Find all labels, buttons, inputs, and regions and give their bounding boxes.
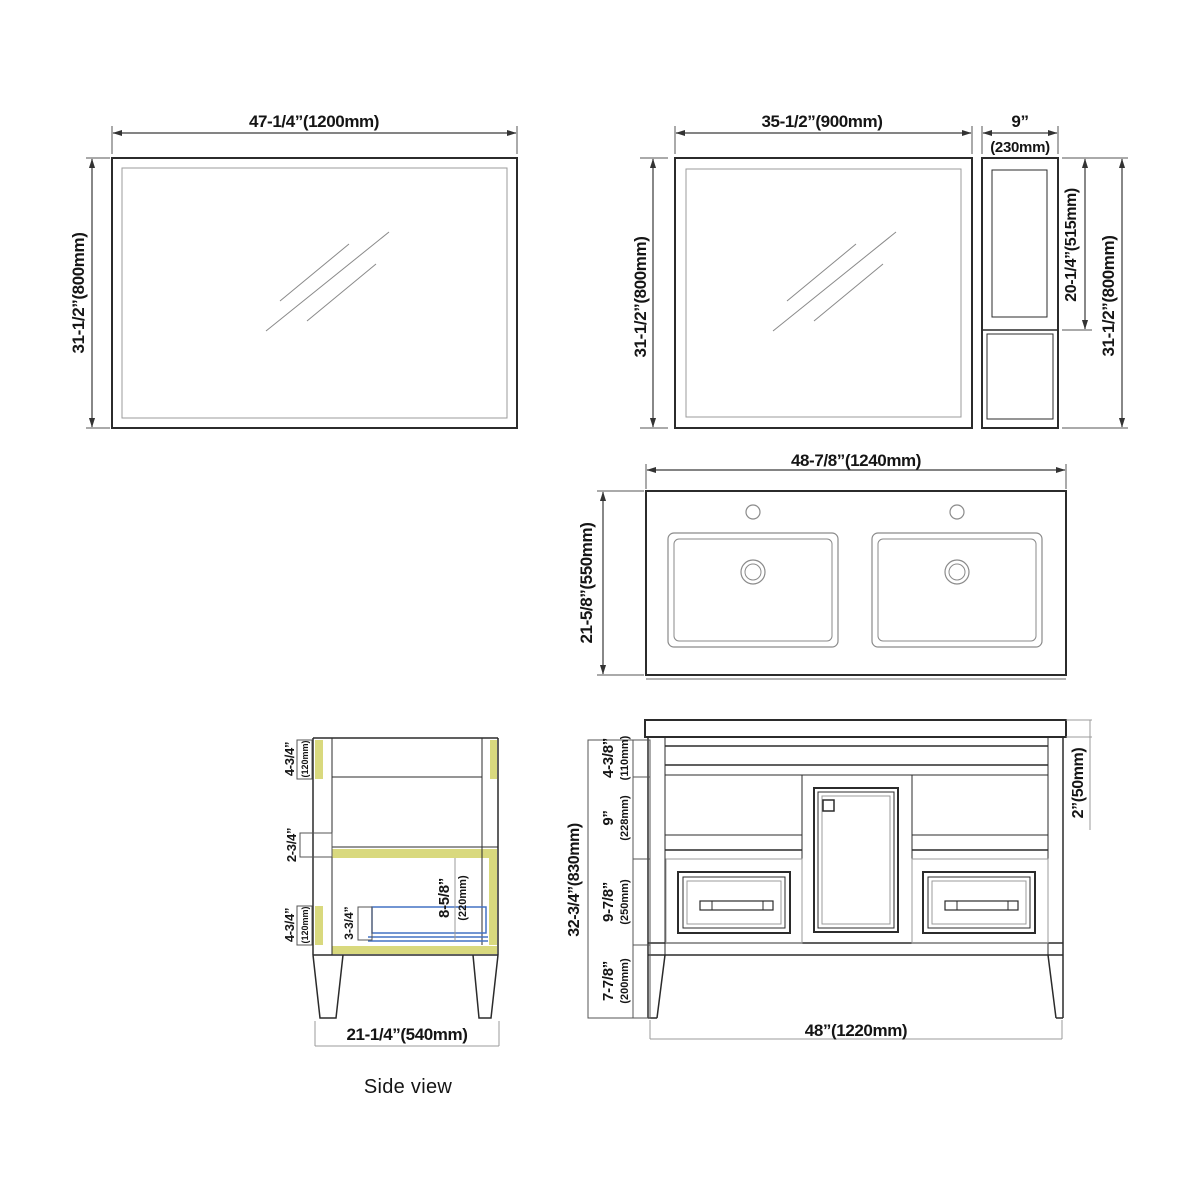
- front-section2-inch-label: 9”: [600, 810, 617, 825]
- sink-top-view: 48-7/8”(1240mm) 21-5/8”(550mm): [577, 451, 1066, 679]
- front-section3-mm-label: (250mm): [619, 879, 631, 925]
- countertop-depth-extension-lines: [597, 491, 644, 675]
- front-section1-inch-label: 4-3/8”: [600, 738, 617, 778]
- side-bottom-rail-highlight: [332, 946, 497, 954]
- side-drawer-slide-lines: [368, 937, 488, 941]
- front-countertop-slab: [645, 720, 1066, 737]
- side-mid-rail-highlight: [332, 849, 497, 858]
- mirror-left-height-label: 31-1/2”(800mm): [69, 232, 88, 353]
- side-mid-rail-label: 2-3/4”: [284, 828, 299, 862]
- side-back-panel-highlight: [489, 858, 497, 945]
- side-bottom-frame-mm-label: (120mm): [300, 906, 310, 943]
- front-section1-mm-label: (110mm): [619, 735, 631, 780]
- side-bottom-left-frame-highlight: [315, 906, 323, 945]
- drawing-canvas: 47-1/4”(1200mm) 31-1/2”(800mm) 35-1/2”(9…: [0, 0, 1200, 1200]
- side-drawer-front-label: 3-3/4”: [342, 906, 356, 939]
- side-drawer-inner-mm-label: (220mm): [457, 875, 469, 921]
- cabinet-front-view: 32-3/4”(830mm) 4-3/8” (110mm) 9” (228mm)…: [566, 720, 1092, 1040]
- countertop-depth-label: 21-5/8”(550mm): [577, 522, 596, 643]
- side-top-right-frame-highlight: [490, 740, 497, 779]
- countertop-width-label: 48-7/8”(1240mm): [791, 451, 921, 470]
- cabinet-side-view: 4-3/4” (120mm) 2-3/4” 4-3/4” (120mm) 3-3…: [282, 738, 499, 1098]
- mirror-right-width-label: 35-1/2”(900mm): [761, 112, 882, 131]
- side-cabinet-legs: [313, 955, 498, 1018]
- side-cabinet-width-inch-label: 9”: [1011, 112, 1028, 131]
- mirror-right-view: 35-1/2”(900mm) 9” (230mm) 31-1/2”(800mm)…: [631, 112, 1128, 428]
- side-cabinet-door-height-label: 20-1/4”(515mm): [1063, 188, 1080, 302]
- side-drawer-front-dim-bracket: [358, 907, 372, 940]
- side-top-left-frame-highlight: [315, 740, 323, 779]
- front-countertop-thickness-label: 2”(50mm): [1070, 748, 1087, 819]
- side-drawer-inner-inch-label: 8-5/8”: [436, 878, 453, 918]
- mirror-left-width-label: 47-1/4”(1200mm): [249, 112, 379, 131]
- side-view-caption: Side view: [364, 1076, 453, 1098]
- front-section2-mm-label: (228mm): [619, 795, 631, 841]
- mirror-left-height-extension-lines: [86, 158, 110, 428]
- mirror-left-frame: [112, 158, 517, 428]
- mirror-right-frame: [675, 158, 972, 428]
- front-door-outer-frame: [814, 788, 898, 932]
- side-mid-rail-dim-bracket: [300, 833, 332, 857]
- front-section4-mm-label: (200mm): [619, 958, 631, 1004]
- front-section3-inch-label: 9-7/8”: [600, 882, 617, 922]
- side-cabinet-inner-lines: [332, 738, 498, 955]
- side-depth-label: 21-1/4”(540mm): [346, 1025, 467, 1044]
- side-top-frame-mm-label: (120mm): [300, 740, 310, 777]
- front-width-label: 48”(1220mm): [805, 1021, 907, 1040]
- front-overall-height-label: 32-3/4”(830mm): [566, 823, 583, 937]
- side-cabinet-width-mm-label: (230mm): [990, 139, 1050, 156]
- mirror-left-view: 47-1/4”(1200mm) 31-1/2”(800mm): [69, 112, 517, 428]
- front-section4-inch-label: 7-7/8”: [600, 961, 617, 1001]
- mirror-right-height-label: 31-1/2”(800mm): [631, 236, 650, 357]
- side-bottom-frame-inch-label: 4-3/4”: [282, 908, 297, 942]
- front-legs: [648, 955, 1063, 1018]
- mirror-right-overall-height-label: 31-1/2”(800mm): [1099, 235, 1118, 356]
- side-top-frame-inch-label: 4-3/4”: [282, 742, 297, 776]
- vanity-dimension-drawing: 47-1/4”(1200mm) 31-1/2”(800mm) 35-1/2”(9…: [0, 0, 1200, 1200]
